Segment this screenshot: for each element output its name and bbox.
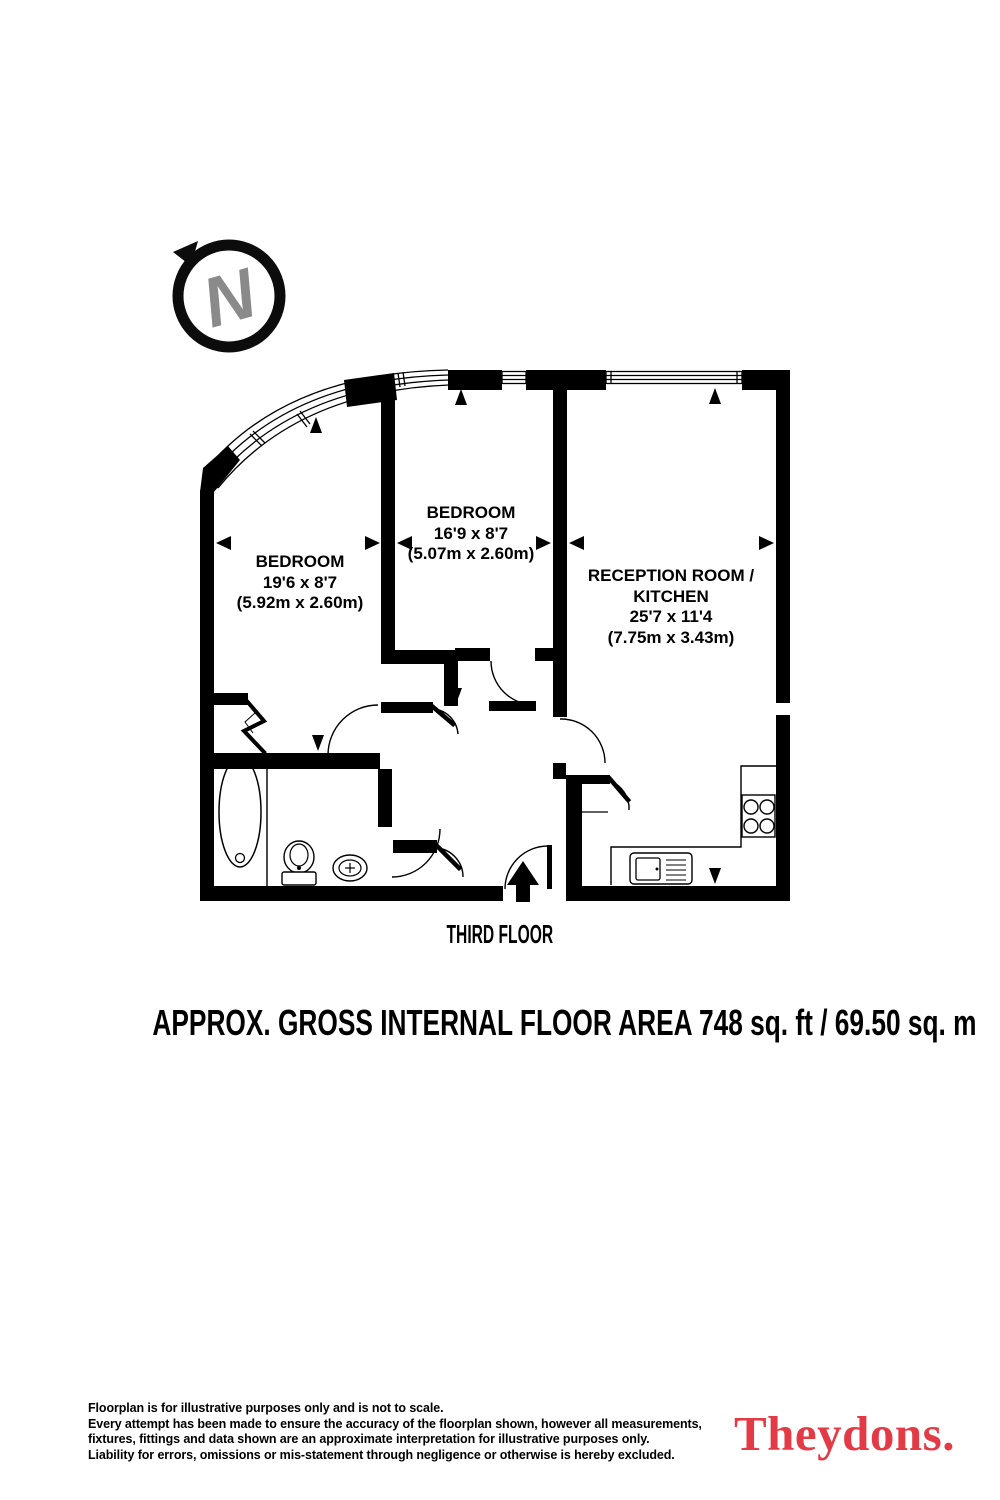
room-name-2: KITCHEN	[588, 587, 754, 608]
room-dims-m: (5.92m x 2.60m)	[237, 593, 364, 614]
hob-icon	[742, 795, 775, 837]
kitchen-sink-icon	[630, 853, 692, 884]
room-dims-m: (7.75m x 3.43m)	[588, 628, 754, 649]
disclaimer-text: Floorplan is for illustrative purposes o…	[88, 1401, 702, 1463]
entrance-arrow-icon	[507, 861, 539, 902]
small-window	[502, 372, 526, 384]
room-dims-ft: 25'7 x 11'4	[588, 607, 754, 628]
room-label-bedroom-1: BEDROOM 19'6 x 8'7 (5.92m x 2.60m)	[237, 552, 364, 614]
room-dims-ft: 16'9 x 8'7	[408, 524, 535, 545]
room-name: BEDROOM	[408, 503, 535, 524]
disclaimer-line: Every attempt has been made to ensure th…	[88, 1417, 702, 1433]
disclaimer-line: Floorplan is for illustrative purposes o…	[88, 1401, 702, 1417]
bifold-closet-door	[244, 700, 264, 752]
disclaimer-line: Liability for errors, omissions or mis-s…	[88, 1448, 702, 1464]
room-label-reception-kitchen: RECEPTION ROOM / KITCHEN 25'7 x 11'4 (7.…	[588, 566, 754, 648]
brand-logo: Theydons.	[734, 1405, 955, 1462]
room-label-bedroom-2: BEDROOM 16'9 x 8'7 (5.07m x 2.60m)	[408, 503, 535, 565]
compass-icon: N	[173, 241, 280, 347]
room-name: RECEPTION ROOM /	[588, 566, 754, 587]
floorplan-page: N	[0, 0, 1000, 1500]
compass-letter: N	[194, 253, 265, 342]
room-name: BEDROOM	[237, 552, 364, 573]
curved-window	[203, 370, 448, 473]
floorplan-graphic: N	[0, 0, 1000, 1500]
kitchen-fittings	[582, 766, 776, 885]
toilet-icon	[282, 841, 316, 885]
basin-icon	[333, 855, 367, 881]
room-dims-ft: 19'6 x 8'7	[237, 573, 364, 594]
floor-label: THIRD FLOOR	[0, 919, 1000, 950]
disclaimer-line: fixtures, fittings and data shown are an…	[88, 1432, 702, 1448]
area-summary: APPROX. GROSS INTERNAL FLOOR AREA 748 sq…	[0, 1002, 1000, 1044]
room-dims-m: (5.07m x 2.60m)	[408, 544, 535, 565]
bathroom-fittings	[219, 757, 367, 886]
bathtub-icon	[219, 757, 261, 867]
reception-window	[606, 372, 742, 384]
